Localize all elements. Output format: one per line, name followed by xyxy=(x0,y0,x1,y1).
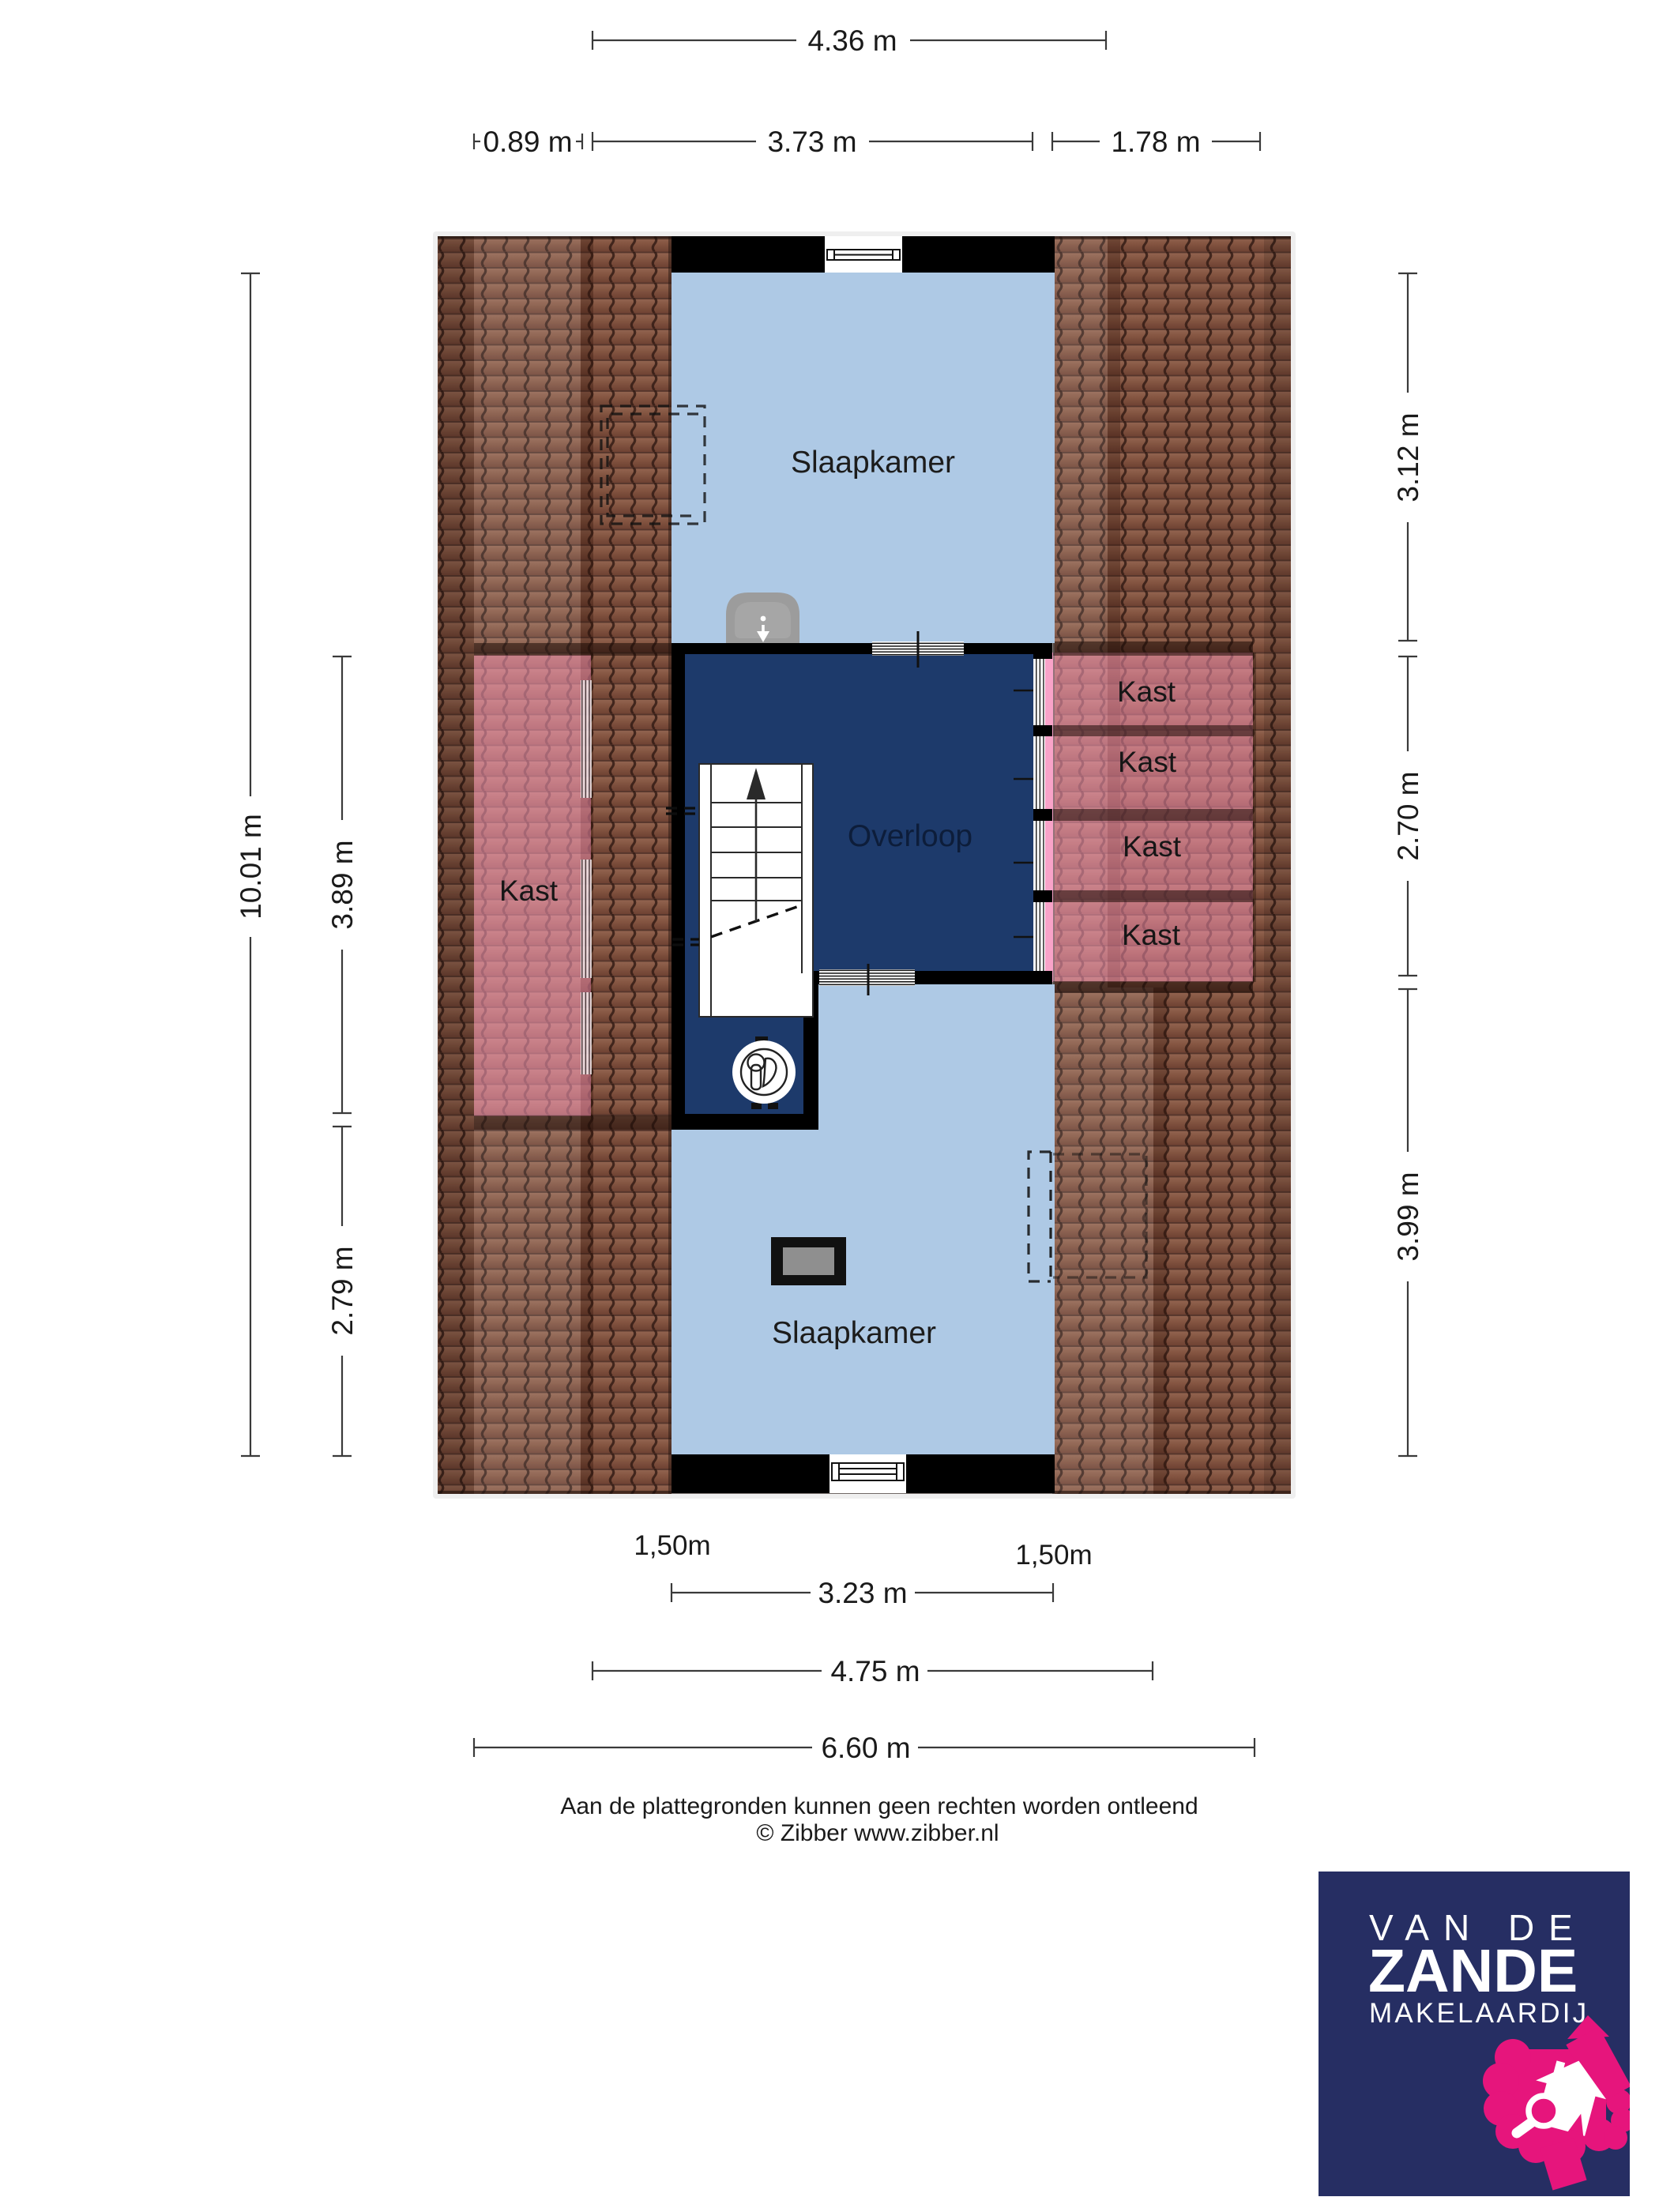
svg-text:1.78 m: 1.78 m xyxy=(1111,126,1200,158)
svg-text:6.60 m: 6.60 m xyxy=(821,1732,910,1764)
svg-text:3.73 m: 3.73 m xyxy=(767,126,856,158)
svg-text:3.99 m: 3.99 m xyxy=(1392,1172,1424,1261)
svg-text:3.12 m: 3.12 m xyxy=(1392,412,1424,502)
svg-text:0.89 m: 0.89 m xyxy=(483,126,572,158)
svg-text:1,50m: 1,50m xyxy=(1015,1540,1092,1571)
svg-text:2.70 m: 2.70 m xyxy=(1392,771,1424,860)
svg-text:Overloop: Overloop xyxy=(848,819,972,853)
svg-text:Slaapkamer: Slaapkamer xyxy=(772,1316,936,1350)
svg-text:Aan de plattegronden kunnen ge: Aan de plattegronden kunnen geen rechten… xyxy=(560,1793,1198,1819)
svg-text:MAKELAARDIJ: MAKELAARDIJ xyxy=(1369,1998,1589,2029)
svg-text:4.36 m: 4.36 m xyxy=(807,24,897,57)
svg-text:4.75 m: 4.75 m xyxy=(830,1655,920,1687)
svg-text:Slaapkamer: Slaapkamer xyxy=(791,446,955,480)
svg-text:10.01 m: 10.01 m xyxy=(235,814,267,920)
svg-text:2.79 m: 2.79 m xyxy=(326,1246,359,1335)
svg-text:3.23 m: 3.23 m xyxy=(818,1577,907,1609)
svg-text:© Zibber www.zibber.nl: © Zibber www.zibber.nl xyxy=(756,1820,999,1846)
svg-text:ZANDE: ZANDE xyxy=(1368,1937,1578,2005)
svg-text:Kast: Kast xyxy=(1117,675,1176,708)
svg-text:1,50m: 1,50m xyxy=(634,1530,710,1561)
svg-text:3.89 m: 3.89 m xyxy=(326,840,359,929)
svg-text:Kast: Kast xyxy=(499,875,559,907)
svg-text:Kast: Kast xyxy=(1122,919,1181,951)
svg-text:Kast: Kast xyxy=(1118,746,1177,778)
svg-text:Kast: Kast xyxy=(1123,830,1182,863)
